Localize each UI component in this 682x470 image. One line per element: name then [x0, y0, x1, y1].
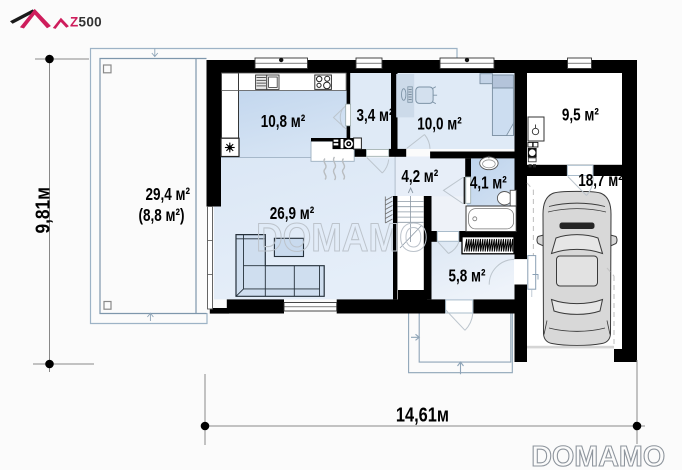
- svg-text:9,81м: 9,81м: [31, 187, 53, 233]
- svg-text:5,8 м²: 5,8 м²: [449, 267, 486, 286]
- svg-text:9,5 м²: 9,5 м²: [562, 106, 599, 125]
- svg-text:(8,8 м²): (8,8 м²): [139, 206, 185, 225]
- svg-text:3,4 м²: 3,4 м²: [357, 106, 394, 125]
- svg-text:DOMAMO: DOMAMO: [531, 441, 665, 470]
- svg-text:18,7 м²: 18,7 м²: [578, 171, 622, 190]
- svg-text:14,61м: 14,61м: [396, 403, 449, 426]
- svg-text:10,8 м²: 10,8 м²: [261, 112, 305, 131]
- svg-text:4,1 м²: 4,1 м²: [470, 174, 507, 193]
- svg-text:DOMAMO: DOMAMO: [256, 216, 428, 261]
- svg-text:4,2 м²: 4,2 м²: [401, 167, 438, 186]
- svg-text:10,0 м²: 10,0 м²: [417, 115, 461, 134]
- svg-text:Z500: Z500: [70, 15, 102, 30]
- svg-text:29,4 м²: 29,4 м²: [145, 185, 189, 204]
